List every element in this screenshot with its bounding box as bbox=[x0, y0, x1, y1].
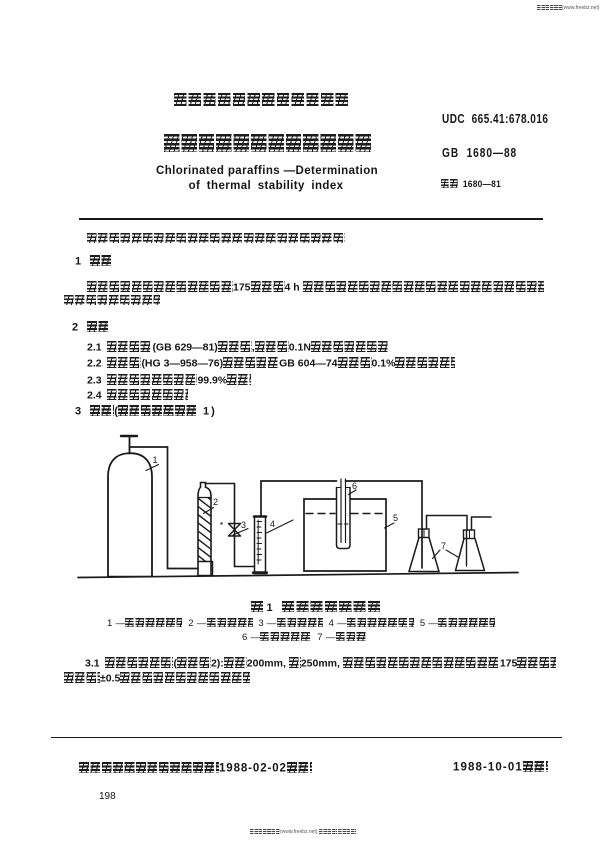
svg-text:6: 6 bbox=[352, 481, 357, 491]
svg-text:5: 5 bbox=[393, 513, 398, 523]
svg-text:3: 3 bbox=[241, 520, 246, 530]
svg-text:4: 4 bbox=[270, 519, 275, 529]
svg-text:1: 1 bbox=[153, 455, 158, 465]
svg-text:2: 2 bbox=[213, 497, 218, 507]
svg-text:7: 7 bbox=[441, 541, 446, 551]
